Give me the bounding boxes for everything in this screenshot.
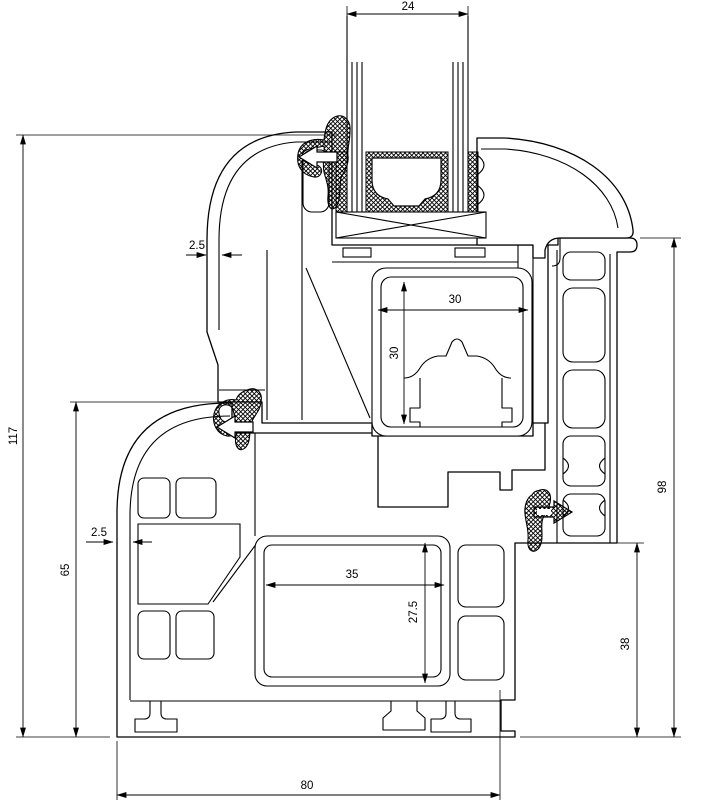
dim-label-frame-height-left: 65 (60, 564, 72, 577)
dim-label-frame-steel-height: 27.5 (408, 601, 420, 623)
dim-label-glass-thickness: 24 (402, 1, 415, 13)
dim-label-sash-steel-width: 30 (449, 294, 462, 306)
frame-chamber-small-2 (176, 478, 216, 518)
dim-label-frame-depth: 80 (301, 780, 314, 792)
rebate-detail-1 (343, 248, 371, 257)
glass-pane-left (347, 16, 362, 214)
frame-chamber-small-4 (176, 611, 214, 659)
dim-label-sash-steel-height: 30 (389, 347, 401, 360)
frame-chamber-right-2 (458, 616, 504, 680)
rebate-detail-2 (455, 248, 485, 257)
frame-chamber-small-1 (138, 478, 170, 518)
glass-pane-right (453, 16, 468, 214)
glazing-packer-right (468, 152, 478, 212)
technical-drawing-page: 24 2.5 30 30 117 65 (0, 0, 706, 804)
dim-glass-thickness: 24 (347, 1, 468, 60)
dim-label-sash-wall: 2.5 (189, 240, 205, 252)
upright-cell-4 (563, 436, 605, 486)
dim-frame-lower-height: 38 (565, 543, 644, 737)
rebate-seal-arrow-slot (537, 509, 551, 515)
upright-cell-1 (563, 252, 605, 280)
dim-label-total-height: 117 (8, 427, 20, 445)
dim-label-frame-steel-width: 35 (346, 569, 359, 581)
window-profile-cross-section: 24 2.5 30 30 117 65 (0, 0, 706, 804)
dim-label-frame-wall: 2.5 (91, 527, 107, 539)
dim-label-frame-lower-height: 38 (620, 638, 632, 651)
upright-cell-5 (563, 494, 605, 536)
frame-chamber-right-1 (458, 545, 504, 607)
upright-cell-3 (563, 370, 605, 428)
glass-unit (336, 16, 486, 238)
frame-chamber-small-3 (138, 611, 170, 659)
upright-cell-2 (563, 288, 605, 362)
dim-label-frame-height-right: 98 (657, 481, 669, 494)
